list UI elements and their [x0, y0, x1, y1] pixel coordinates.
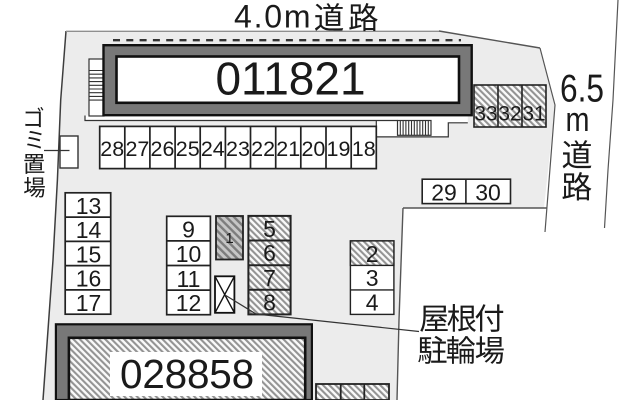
svg-text:5: 5	[263, 216, 276, 242]
svg-text:16: 16	[76, 266, 102, 292]
svg-text:4: 4	[366, 290, 379, 316]
svg-text:23: 23	[226, 137, 250, 161]
svg-text:8: 8	[263, 289, 276, 315]
svg-text:11: 11	[177, 266, 201, 292]
svg-text:7: 7	[263, 265, 276, 291]
svg-text:29: 29	[431, 180, 457, 206]
svg-text:15: 15	[76, 241, 102, 267]
svg-text:19: 19	[327, 137, 351, 161]
svg-text:011821: 011821	[215, 53, 365, 105]
svg-text:26: 26	[151, 137, 175, 161]
svg-text:6: 6	[263, 240, 276, 266]
svg-text:27: 27	[125, 137, 149, 161]
svg-text:13: 13	[76, 193, 102, 219]
svg-text:17: 17	[76, 290, 102, 316]
svg-text:12: 12	[176, 290, 202, 316]
svg-text:28: 28	[100, 137, 124, 161]
svg-text:22: 22	[251, 137, 275, 161]
svg-text:30: 30	[475, 180, 501, 206]
svg-text:028858: 028858	[120, 351, 254, 397]
svg-text:9: 9	[182, 217, 195, 243]
svg-text:10: 10	[176, 241, 202, 267]
svg-text:25: 25	[176, 137, 200, 161]
svg-text:2: 2	[366, 241, 379, 267]
svg-text:4.0m: 4.0m	[234, 0, 312, 35]
svg-text:21: 21	[276, 137, 300, 161]
svg-text:3: 3	[366, 265, 379, 291]
svg-text:m: m	[566, 101, 590, 139]
svg-text:14: 14	[76, 217, 102, 243]
svg-text:33: 33	[474, 103, 497, 126]
svg-text:31: 31	[522, 103, 545, 126]
svg-text:1: 1	[225, 230, 233, 247]
svg-text:24: 24	[201, 137, 225, 161]
svg-text:32: 32	[498, 103, 521, 126]
svg-text:20: 20	[301, 137, 325, 161]
svg-text:18: 18	[352, 137, 376, 161]
